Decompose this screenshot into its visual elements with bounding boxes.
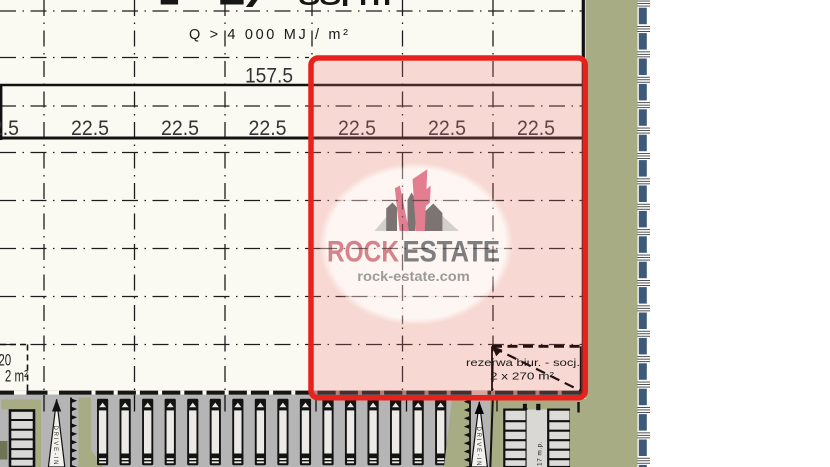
svg-text:157.5: 157.5 <box>245 63 293 87</box>
svg-text:rock-estate.com: rock-estate.com <box>357 268 470 284</box>
svg-text:22.5: 22.5 <box>0 116 19 140</box>
svg-text:rezerwa biur. - socj.: rezerwa biur. - socj. <box>466 358 580 369</box>
svg-text:ESTATE: ESTATE <box>403 236 501 269</box>
svg-text:22.5: 22.5 <box>249 116 287 140</box>
svg-text:ROCK: ROCK <box>327 236 400 269</box>
svg-text:2 m²: 2 m² <box>5 367 28 386</box>
svg-text:17 m.p.: 17 m.p. <box>536 441 543 466</box>
svg-text:22.5: 22.5 <box>161 116 199 140</box>
svg-text:Q > 4 000 MJ / m²: Q > 4 000 MJ / m² <box>189 27 348 43</box>
svg-text:2 x 270 m²: 2 x 270 m² <box>490 372 555 383</box>
svg-text:22.5: 22.5 <box>71 116 109 140</box>
